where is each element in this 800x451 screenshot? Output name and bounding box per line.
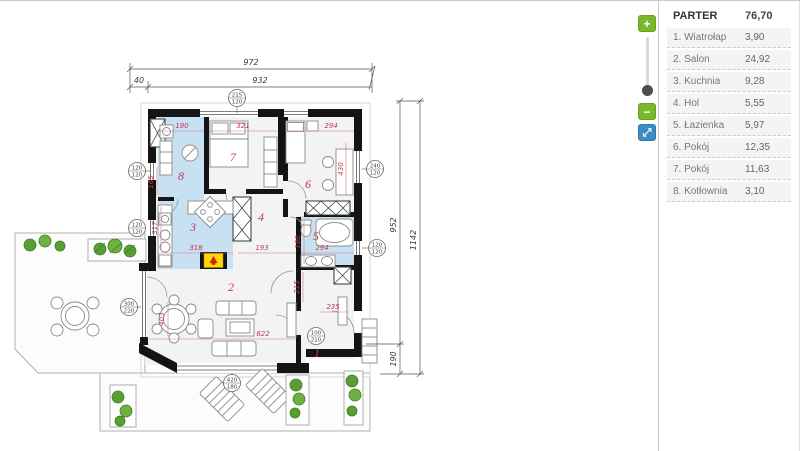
room-list-item[interactable]: 1. Wiatrołap 3,90 bbox=[667, 28, 791, 48]
room-area: 12,35 bbox=[745, 142, 770, 153]
dim-terrace-height: 190 bbox=[389, 351, 398, 366]
svg-text:120: 120 bbox=[132, 223, 143, 229]
dim-403: 403 bbox=[158, 312, 166, 325]
dim-317: 317 bbox=[151, 221, 159, 235]
dim-235: 235 bbox=[326, 303, 340, 311]
dim-622: 622 bbox=[256, 330, 270, 338]
floorplan-viewer: 972 40 932 952 190 1142 190 321 294 430 … bbox=[0, 0, 800, 451]
dim-180: 180 bbox=[294, 235, 302, 249]
room-name: 6. Pokój bbox=[673, 142, 745, 153]
dim-294-top: 294 bbox=[324, 122, 337, 130]
room-area: 11,63 bbox=[745, 164, 769, 175]
room-name: 3. Kuchnia bbox=[673, 76, 745, 87]
room-name: 7. Pokój bbox=[673, 164, 745, 175]
room-label-6: 6 bbox=[305, 177, 311, 191]
svg-text:120: 120 bbox=[232, 100, 243, 106]
room-list-item[interactable]: 5. Łazienka 5,97 bbox=[667, 116, 791, 136]
room-area: 5,55 bbox=[745, 98, 764, 109]
room-list-panel: PARTER 76,70 1. Wiatrołap 3,90 2. Salon … bbox=[658, 1, 800, 451]
dim-318: 318 bbox=[189, 244, 203, 252]
room-label-2: 2 bbox=[228, 280, 234, 294]
room-area: 5,97 bbox=[745, 120, 764, 131]
floor-name: PARTER bbox=[673, 10, 745, 22]
room-label-7: 7 bbox=[230, 150, 237, 164]
room-list-item[interactable]: 6. Pokój 12,35 bbox=[667, 138, 791, 158]
room-area: 3,90 bbox=[745, 32, 764, 43]
room-label-4: 4 bbox=[258, 210, 264, 224]
svg-text:240: 240 bbox=[370, 164, 381, 170]
room-list-item[interactable]: 7. Pokój 11,63 bbox=[667, 160, 791, 180]
floor-total-area: 76,70 bbox=[745, 10, 773, 22]
svg-text:120: 120 bbox=[370, 171, 381, 177]
dim-total-width: 972 bbox=[243, 58, 258, 67]
zoom-out-button[interactable]: − bbox=[638, 103, 656, 120]
dim-165: 165 bbox=[147, 175, 155, 189]
plan-canvas[interactable]: 972 40 932 952 190 1142 190 321 294 430 … bbox=[0, 1, 658, 451]
dim-left-offset: 40 bbox=[134, 76, 144, 85]
room-name: 2. Salon bbox=[673, 54, 745, 65]
room-name: 8. Kotłownia bbox=[673, 186, 745, 197]
room-label-1: 1 bbox=[314, 346, 320, 360]
svg-text:210: 210 bbox=[311, 338, 322, 344]
room-name: 5. Łazienka bbox=[673, 120, 745, 131]
room-name: 4. Hol bbox=[673, 98, 745, 109]
window-marker-right-upper: 240 120 bbox=[362, 161, 384, 178]
dim-215: 215 bbox=[293, 280, 301, 294]
floor-header: PARTER 76,70 bbox=[667, 8, 791, 28]
zoom-slider-track[interactable] bbox=[646, 37, 649, 93]
svg-text:120: 120 bbox=[132, 166, 143, 172]
svg-text:100: 100 bbox=[311, 331, 322, 337]
dim-294-bath: 294 bbox=[315, 244, 328, 252]
room-area: 3,10 bbox=[745, 186, 764, 197]
room-name: 1. Wiatrołap bbox=[673, 32, 745, 43]
svg-text:220: 220 bbox=[124, 309, 135, 315]
fireplace bbox=[200, 252, 227, 269]
room-list-item[interactable]: 4. Hol 5,55 bbox=[667, 94, 791, 114]
fullscreen-button[interactable]: ⤢ bbox=[638, 124, 656, 141]
room-list-item[interactable]: 3. Kuchnia 9,28 bbox=[667, 72, 791, 92]
svg-text:120: 120 bbox=[132, 173, 143, 179]
door-marker-room1: 100 210 bbox=[308, 328, 325, 345]
room-label-3: 3 bbox=[189, 220, 196, 234]
svg-text:420: 420 bbox=[227, 378, 238, 384]
wardrobe-room7 bbox=[264, 137, 277, 187]
room-area: 9,28 bbox=[745, 76, 764, 87]
room-list-item[interactable]: 2. Salon 24,92 bbox=[667, 50, 791, 70]
dim-total-height: 1142 bbox=[409, 230, 418, 250]
zoom-controls: + − ⤢ bbox=[638, 15, 656, 141]
fullscreen-icon: ⤢ bbox=[643, 127, 652, 139]
room-list-item[interactable]: 8. Kotłownia 3,10 bbox=[667, 182, 791, 202]
dim-321: 321 bbox=[236, 122, 249, 130]
svg-text:120: 120 bbox=[372, 250, 383, 256]
room-label-5: 5 bbox=[313, 229, 319, 243]
dim-193: 193 bbox=[255, 244, 268, 252]
floorplan-drawing: 972 40 932 952 190 1142 190 321 294 430 … bbox=[0, 1, 658, 451]
dim-main-height: 952 bbox=[389, 217, 398, 232]
dim-430: 430 bbox=[337, 162, 345, 176]
entry-steps bbox=[362, 319, 377, 363]
window-marker-left-lower: 120 120 bbox=[129, 220, 146, 237]
room-area: 24,92 bbox=[745, 54, 770, 65]
svg-text:215: 215 bbox=[232, 93, 243, 99]
cabinet-room1 bbox=[338, 297, 347, 325]
zoom-slider-handle[interactable] bbox=[642, 85, 653, 96]
svg-text:300: 300 bbox=[124, 302, 135, 308]
dim-main-width: 932 bbox=[252, 76, 267, 85]
svg-text:120: 120 bbox=[132, 230, 143, 236]
dim-190: 190 bbox=[175, 122, 189, 130]
svg-text:120: 120 bbox=[372, 243, 383, 249]
room-label-8: 8 bbox=[178, 169, 184, 183]
window-marker-right-lower: 120 120 bbox=[362, 240, 386, 257]
svg-text:180: 180 bbox=[227, 385, 238, 391]
zoom-in-button[interactable]: + bbox=[638, 15, 656, 32]
